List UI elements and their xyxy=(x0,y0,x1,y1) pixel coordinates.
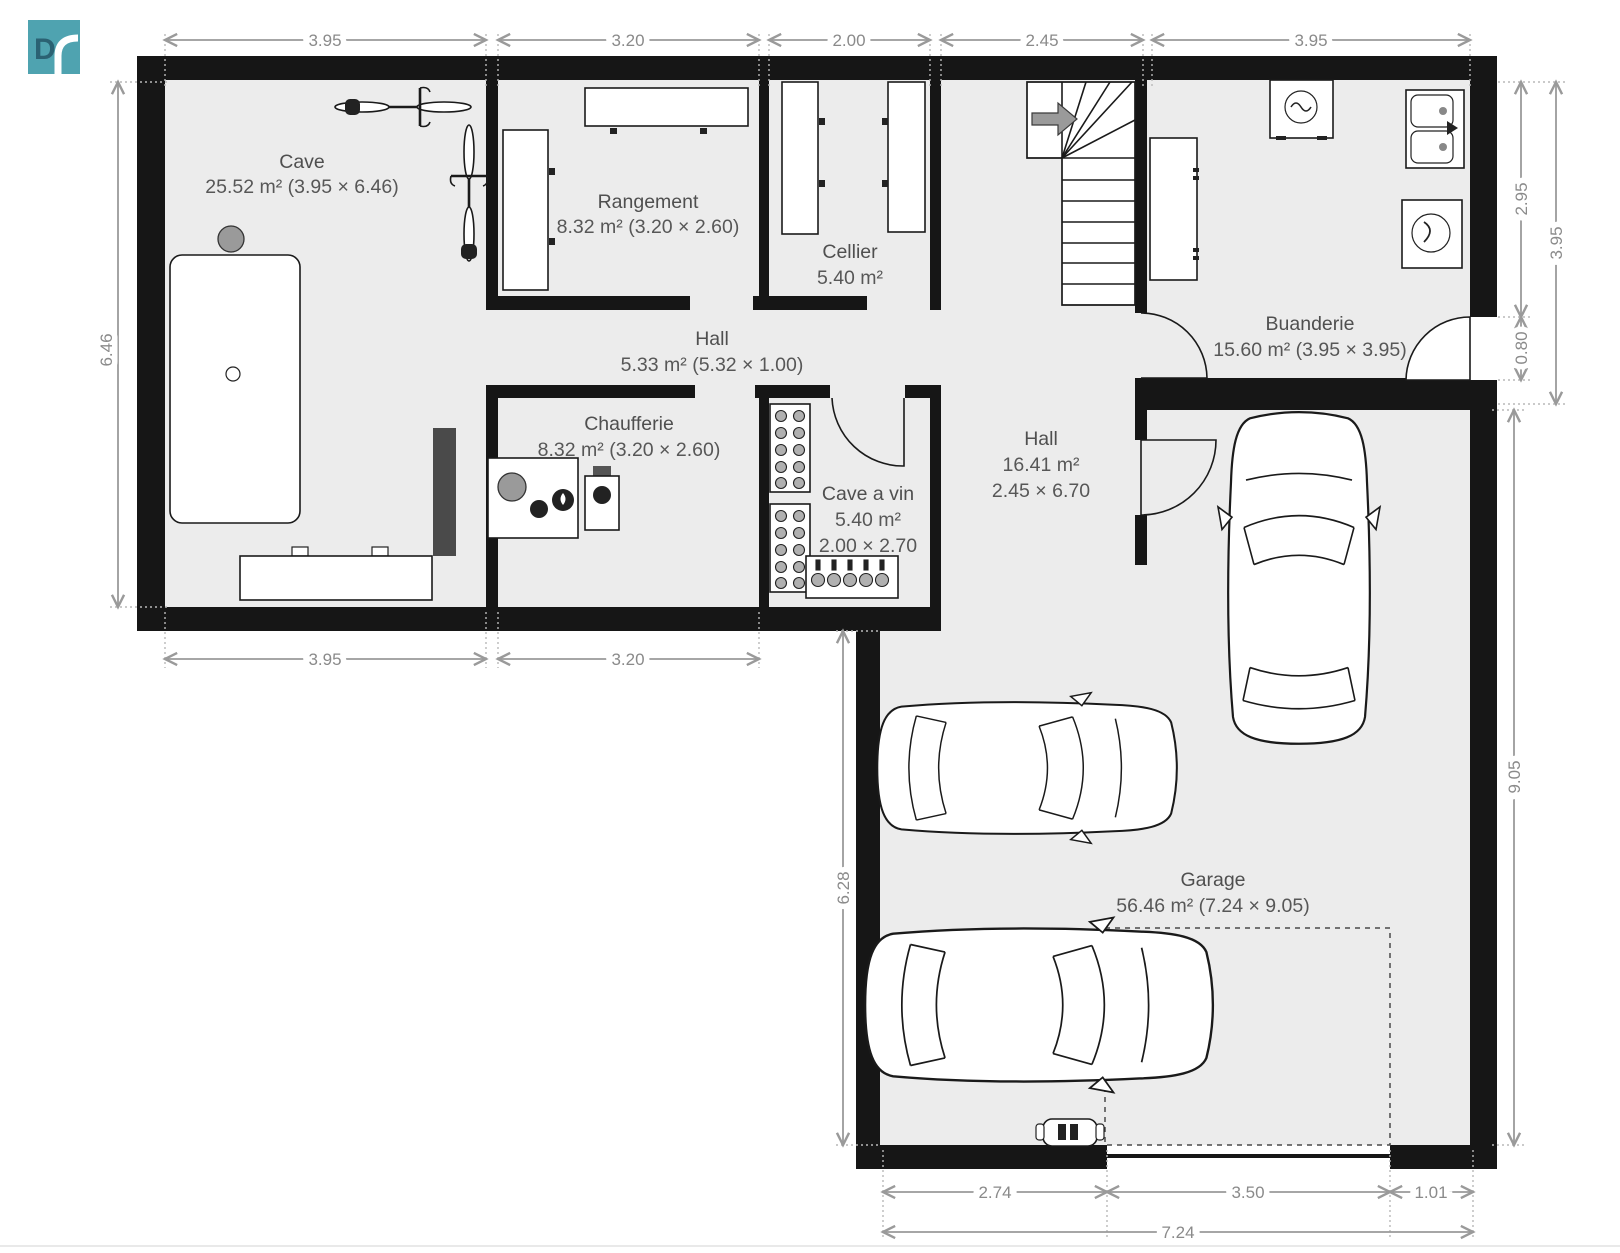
robot-mower-icon xyxy=(1036,1119,1104,1146)
room-area: 16.41 m² xyxy=(1003,454,1080,476)
dim-garage-bottom-2: 3.50 xyxy=(1231,1183,1264,1202)
dim-top-1: 3.95 xyxy=(308,31,341,50)
washing-machine-icon xyxy=(1270,80,1333,140)
shelf xyxy=(503,130,548,290)
dim-top-5: 3.95 xyxy=(1294,31,1327,50)
water-heater-icon xyxy=(170,226,300,523)
room-area: 5.40 m² xyxy=(835,509,902,531)
counter xyxy=(1150,138,1199,280)
wall-stub-cellier xyxy=(930,296,941,310)
room-area: 56.46 m² (7.24 × 9.05) xyxy=(1116,895,1310,917)
room-dims: 2.45 × 6.70 xyxy=(992,480,1090,502)
room-area: 8.32 m² (3.20 × 2.60) xyxy=(538,439,721,461)
car-icon xyxy=(1218,412,1380,744)
room-area: 25.52 m² (3.95 × 6.46) xyxy=(205,176,399,198)
room-name: Hall xyxy=(1024,428,1058,450)
wall-exterior-right-a xyxy=(1470,56,1497,317)
room-area: 5.33 m² (5.32 × 1.00) xyxy=(621,354,804,376)
dim-right-inner: 2.95 xyxy=(1512,182,1531,215)
dim-garage-height: 9.05 xyxy=(1505,760,1524,793)
wall-chaufferie-top xyxy=(486,385,695,398)
wall-cave-right-a xyxy=(486,80,498,310)
room-name: Cave a vin xyxy=(822,483,914,505)
dim-bottom-left-2: 3.20 xyxy=(611,650,644,669)
wall-rangement-bottom-b xyxy=(753,296,867,310)
wall-hall-buanderie xyxy=(1135,80,1147,313)
wall-hall-garage-a xyxy=(1135,404,1147,440)
logo-letter: D xyxy=(34,33,56,66)
wall-exterior-right-b xyxy=(1470,380,1497,1169)
app-logo: D xyxy=(28,20,80,76)
room-name: Chaufferie xyxy=(584,413,674,435)
room-name: Rangement xyxy=(598,191,699,213)
dim-garage-left: 6.28 xyxy=(834,871,853,904)
dim-bottom-left-1: 3.95 xyxy=(308,650,341,669)
room-area: 8.32 m² (3.20 × 2.60) xyxy=(557,216,740,238)
room-name: Garage xyxy=(1180,869,1245,891)
dim-right-outer: 3.95 xyxy=(1547,226,1566,259)
room-area: 15.60 m² (3.95 × 3.95) xyxy=(1213,339,1407,361)
wine-rack-icon xyxy=(770,504,810,592)
wall-exterior-left xyxy=(137,56,165,631)
wall-cavevin-right xyxy=(930,385,941,631)
floor-plan-canvas: Cave 25.52 m² (3.95 × 6.46) Rangement 8.… xyxy=(0,0,1620,1253)
double-sink-icon xyxy=(1406,90,1464,168)
room-name: Cellier xyxy=(822,241,878,263)
dim-top-4: 2.45 xyxy=(1025,31,1058,50)
dim-garage-total: 7.24 xyxy=(1161,1223,1194,1242)
room-area: 5.40 m² xyxy=(817,267,884,289)
boiler-icon xyxy=(488,458,619,538)
laundry-tub-icon xyxy=(1402,200,1462,268)
shelf xyxy=(585,88,748,126)
wall-buanderie-bottom xyxy=(1135,378,1470,410)
wall-chaufferie-cavevin xyxy=(759,385,769,631)
wall-cellier-left xyxy=(759,80,769,296)
wall-rangement-bottom-a xyxy=(486,296,690,310)
dim-top-3: 2.00 xyxy=(832,31,865,50)
dim-garage-bottom-3: 1.01 xyxy=(1414,1183,1447,1202)
wine-rack-icon xyxy=(806,556,898,598)
room-dims: 2.00 × 2.70 xyxy=(819,535,917,557)
car-icon xyxy=(865,918,1213,1093)
dim-garage-bottom-1: 2.74 xyxy=(978,1183,1011,1202)
room-name: Cave xyxy=(279,151,325,173)
shelf xyxy=(888,82,925,232)
car-icon xyxy=(877,693,1176,844)
shelf xyxy=(782,82,818,234)
wall-cellier-right xyxy=(930,80,941,296)
wall-garage-bottom-a xyxy=(856,1145,1107,1169)
floor-plan-page: Cave 25.52 m² (3.95 × 6.46) Rangement 8.… xyxy=(0,0,1620,1253)
dim-right-door: 0.80 xyxy=(1512,331,1531,364)
wall-hall-garage-b xyxy=(1135,515,1147,565)
electrical-panel xyxy=(433,428,456,556)
wall-exterior-bottom-left xyxy=(137,607,941,631)
room-name: Hall xyxy=(695,328,729,350)
dim-top-2: 3.20 xyxy=(611,31,644,50)
wall-exterior-top xyxy=(137,56,1497,80)
room-name: Buanderie xyxy=(1266,313,1355,335)
wine-rack-icon xyxy=(770,404,810,492)
dim-left: 6.46 xyxy=(97,333,116,366)
wall-garage-left xyxy=(856,607,880,1169)
